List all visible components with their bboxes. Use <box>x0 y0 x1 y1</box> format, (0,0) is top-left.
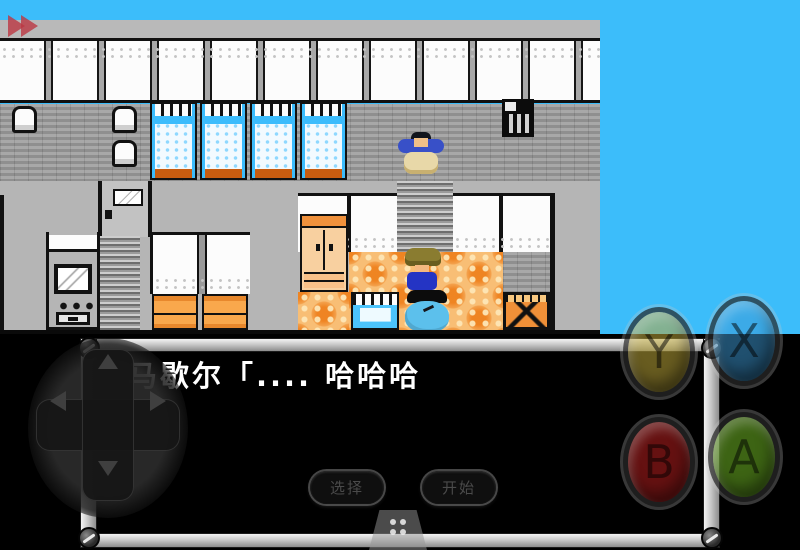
wardrobe-handle <box>316 244 320 251</box>
tv-room <box>46 232 100 330</box>
chair-sprite <box>112 106 137 133</box>
window-curtain-dots <box>153 277 250 292</box>
frame-screw-icon <box>78 527 100 549</box>
dresser-sprite <box>152 294 198 330</box>
dpad-down-arrow-icon[interactable] <box>98 461 118 476</box>
bed-sprite <box>300 102 347 180</box>
start-button-label: 开始 <box>442 477 476 498</box>
npc-body <box>404 152 438 174</box>
orange-carpet <box>298 292 349 330</box>
window-row-room-left <box>150 232 250 294</box>
player-face <box>415 265 429 272</box>
handle-dot-icon <box>400 529 406 535</box>
wardrobe-sprite <box>300 214 348 292</box>
drawer-pull <box>68 317 78 321</box>
dialog-text: 马歇尔「.... 哈哈哈 <box>128 353 688 393</box>
striped-wall-left <box>100 236 140 330</box>
window-curtain-dots <box>0 46 600 62</box>
window-curtain-dots <box>453 236 550 250</box>
select-button-label: 选择 <box>330 477 364 498</box>
bed-sprite-lower <box>351 292 399 330</box>
x-button[interactable]: X <box>713 301 775 381</box>
tv-room-wall <box>49 235 97 252</box>
y-button[interactable]: Y <box>628 312 690 392</box>
bed-sprite <box>250 102 297 180</box>
handle-dot-icon <box>400 519 406 525</box>
dpad-right-arrow-icon[interactable] <box>150 391 166 411</box>
door-window <box>113 189 143 206</box>
dresser-sprite <box>202 294 248 330</box>
wardrobe-handle <box>329 244 333 251</box>
handle-dot-icon <box>390 519 396 525</box>
x-button-label: X <box>728 314 760 368</box>
wardrobe-drawers <box>304 272 344 288</box>
a-button[interactable]: A <box>713 417 775 497</box>
emulator-screen: 马歇尔「.... 哈哈哈 Y X B A 选择 开始 <box>0 0 800 550</box>
building-roof <box>0 20 600 41</box>
player-hat <box>405 248 441 266</box>
frame-screw-icon <box>701 527 723 549</box>
shelf-sprite <box>502 99 534 137</box>
crate-sprite <box>503 292 550 330</box>
bed-sprite <box>200 102 247 180</box>
handle-dot-icon <box>390 529 396 535</box>
striped-column <box>397 181 453 253</box>
npc-muscleman-sprite <box>397 130 445 178</box>
building-left-edge <box>0 195 4 330</box>
shelf-bars <box>509 114 529 133</box>
fast-forward-icon[interactable] <box>21 15 38 37</box>
wardrobe-doors-split <box>323 230 325 270</box>
bed-sprite <box>150 102 197 180</box>
a-button-label: A <box>728 430 759 484</box>
y-button-label: Y <box>645 325 673 379</box>
dpad-left-arrow-icon[interactable] <box>50 391 66 411</box>
chair-sprite <box>112 140 137 167</box>
player-character-sprite <box>402 246 444 296</box>
brick-patch <box>503 252 550 292</box>
tv-sprite <box>54 264 92 294</box>
chair-sprite <box>12 106 37 133</box>
wardrobe-top <box>302 216 346 228</box>
player-body <box>407 272 437 290</box>
dpad-vertical-bar[interactable] <box>82 349 134 501</box>
start-button[interactable]: 开始 <box>422 471 496 504</box>
companion-body <box>405 301 449 333</box>
b-button-label: B <box>643 435 675 489</box>
b-button[interactable]: B <box>628 422 690 502</box>
npc-face <box>414 138 428 147</box>
drawer-sprite <box>56 312 90 325</box>
door-handle <box>105 210 112 219</box>
dpad-up-arrow-icon[interactable] <box>98 354 118 369</box>
door-sprite <box>98 181 152 237</box>
select-button[interactable]: 选择 <box>310 471 384 504</box>
window-row-room-right2 <box>453 193 550 252</box>
shelf-pane <box>505 102 516 111</box>
trinkets-sprite <box>55 298 93 310</box>
room-right-wall <box>550 193 555 330</box>
dialog-frame-top <box>80 338 720 352</box>
